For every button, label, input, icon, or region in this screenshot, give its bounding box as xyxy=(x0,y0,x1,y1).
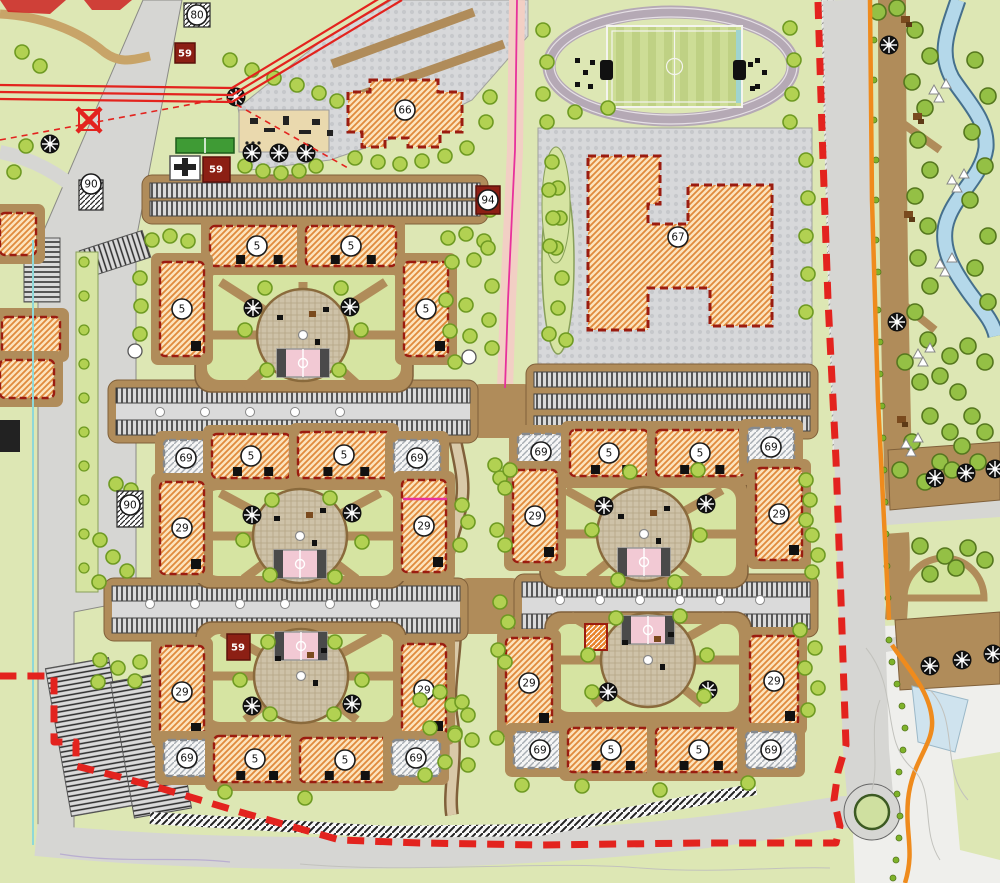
exercise-equipment xyxy=(583,70,588,75)
park-tree xyxy=(922,278,938,294)
tree xyxy=(668,575,682,589)
park-tree xyxy=(977,552,993,568)
carousel-hub xyxy=(991,652,996,657)
edge-structure xyxy=(0,420,20,452)
carousel-hub xyxy=(928,664,933,669)
carousel-hub xyxy=(350,702,355,707)
tree xyxy=(238,323,252,337)
bench-icon xyxy=(321,648,327,653)
play-equipment-icon xyxy=(312,119,320,125)
tree xyxy=(79,257,89,267)
tree xyxy=(811,681,825,695)
park-tree xyxy=(967,52,983,68)
tree xyxy=(455,498,469,512)
tree xyxy=(542,183,556,197)
play-equipment-icon xyxy=(299,130,311,134)
park-tree xyxy=(922,48,938,64)
tree xyxy=(803,493,817,507)
bench-icon xyxy=(622,640,628,645)
carousel-hub xyxy=(964,471,969,476)
tree xyxy=(546,211,560,225)
tree xyxy=(413,693,427,707)
tree xyxy=(467,253,481,267)
bush xyxy=(890,875,896,881)
park-tree xyxy=(922,408,938,424)
tree xyxy=(490,523,504,537)
tree xyxy=(601,101,615,115)
entrance xyxy=(264,467,273,476)
lane-island-dot xyxy=(146,600,155,609)
tree xyxy=(323,491,337,505)
play-item-icon xyxy=(306,512,313,518)
courtyard-block-1 xyxy=(195,262,413,392)
plaza-dot xyxy=(128,344,142,358)
entrance xyxy=(435,341,445,351)
courtyard-block-2 xyxy=(194,478,406,588)
tree xyxy=(163,229,177,243)
tree xyxy=(328,635,342,649)
tree xyxy=(485,341,499,355)
tree xyxy=(312,86,326,100)
entrance xyxy=(680,465,689,474)
marker-59: 59 xyxy=(227,634,250,660)
tree xyxy=(488,458,502,472)
right-road xyxy=(846,0,870,795)
park-tree xyxy=(907,304,923,320)
lane-island-dot xyxy=(281,600,290,609)
park-tree xyxy=(910,132,926,148)
park-tree xyxy=(889,0,905,16)
building-29: 29 xyxy=(151,473,213,583)
tree xyxy=(798,661,812,675)
building-5: 5 xyxy=(201,217,313,275)
promenade-south xyxy=(896,533,899,620)
building-footprint xyxy=(0,360,54,398)
roundabout-island xyxy=(855,795,889,829)
exercise-equipment xyxy=(575,82,580,87)
tree xyxy=(811,548,825,562)
building-number-5: 5 xyxy=(608,745,615,757)
tree xyxy=(354,323,368,337)
court-key xyxy=(275,632,284,660)
tree xyxy=(233,673,247,687)
tree xyxy=(93,653,107,667)
tree xyxy=(501,615,515,629)
entrance xyxy=(323,467,332,476)
tree xyxy=(332,363,346,377)
tree xyxy=(783,21,797,35)
building-number-29: 29 xyxy=(417,521,430,533)
tree xyxy=(265,493,279,507)
tree xyxy=(483,90,497,104)
fitness-icon xyxy=(182,158,188,176)
carousel-hub xyxy=(606,690,611,695)
tree xyxy=(540,115,554,129)
building-5: 5 xyxy=(297,217,405,275)
tree xyxy=(801,703,815,717)
tree xyxy=(111,661,125,675)
exercise-equipment xyxy=(588,84,593,89)
utility-shed xyxy=(585,624,607,650)
tree xyxy=(585,685,599,699)
tree xyxy=(79,359,89,369)
tree xyxy=(292,164,306,178)
park-tree xyxy=(942,348,958,364)
tree xyxy=(805,565,819,579)
tree xyxy=(515,778,529,792)
picnic-table-icon xyxy=(913,113,922,120)
carousel-hub xyxy=(251,306,256,311)
tree xyxy=(623,465,637,479)
lane-island-dot xyxy=(371,600,380,609)
tree xyxy=(793,623,807,637)
bush xyxy=(896,769,902,775)
tree xyxy=(348,151,362,165)
marker-number-59: 59 xyxy=(231,643,245,654)
tree xyxy=(799,473,813,487)
tree xyxy=(91,675,105,689)
tree xyxy=(455,695,469,709)
tree xyxy=(330,94,344,108)
tree xyxy=(263,568,277,582)
tree xyxy=(263,707,277,721)
bush xyxy=(896,835,902,841)
tree xyxy=(611,573,625,587)
lane-island-dot xyxy=(291,408,300,417)
tree xyxy=(481,241,495,255)
tree xyxy=(438,149,452,163)
marker-number-90: 90 xyxy=(84,179,97,191)
bench-icon xyxy=(664,506,670,511)
bench-icon xyxy=(315,339,320,345)
tree xyxy=(415,154,429,168)
park-tree xyxy=(912,538,928,554)
building-number-66: 66 xyxy=(398,105,412,117)
entrance xyxy=(233,467,242,476)
tree xyxy=(808,641,822,655)
tree xyxy=(498,655,512,669)
tree xyxy=(260,363,274,377)
tree xyxy=(15,45,29,59)
tree xyxy=(19,139,33,153)
marker-59: 59 xyxy=(175,43,195,63)
court-key xyxy=(665,616,674,644)
park-tree xyxy=(980,88,996,104)
bench-icon xyxy=(668,632,674,637)
tree xyxy=(536,87,550,101)
tree xyxy=(479,115,493,129)
exercise-equipment xyxy=(750,86,755,91)
play-dot xyxy=(245,141,248,144)
tree xyxy=(799,153,813,167)
tree xyxy=(261,635,275,649)
picnic-table-icon xyxy=(901,16,910,23)
bench-icon xyxy=(656,538,661,544)
building-number-69: 69 xyxy=(179,453,192,465)
tree xyxy=(7,165,21,179)
plaza-dot xyxy=(462,350,476,364)
tree xyxy=(355,535,369,549)
promenade xyxy=(892,0,900,505)
park-tree xyxy=(912,374,928,390)
tree xyxy=(673,609,687,623)
tree xyxy=(393,157,407,171)
entrance xyxy=(274,255,283,264)
building-69: 69 xyxy=(737,723,805,777)
tree xyxy=(783,115,797,129)
carousel-hub xyxy=(704,502,709,507)
bench-icon xyxy=(323,307,329,312)
tree xyxy=(482,313,496,327)
parking-apron xyxy=(142,175,488,224)
building-5: 5 xyxy=(151,253,213,365)
tree xyxy=(568,105,582,119)
exercise-equipment xyxy=(755,58,760,63)
building-number-5: 5 xyxy=(342,755,349,767)
bench-icon xyxy=(312,540,317,546)
tree xyxy=(79,325,89,335)
tree xyxy=(465,733,479,747)
picnic-table-icon xyxy=(906,22,912,27)
tree xyxy=(801,267,815,281)
tree xyxy=(585,523,599,537)
entrance xyxy=(680,761,689,770)
entrance xyxy=(592,761,601,770)
building-5: 5 xyxy=(203,425,299,487)
park-tree xyxy=(977,158,993,174)
courtyard-block-3 xyxy=(540,476,748,588)
tree xyxy=(493,595,507,609)
building-number-69: 69 xyxy=(533,745,546,757)
building-29: 29 xyxy=(504,461,566,571)
tree xyxy=(334,281,348,295)
play-item-icon xyxy=(307,652,314,658)
marker-number-90: 90 xyxy=(123,500,136,512)
fountain-dot xyxy=(299,331,308,340)
building-number-5: 5 xyxy=(423,304,430,316)
tree xyxy=(79,529,89,539)
bush xyxy=(902,725,908,731)
tree xyxy=(128,674,142,688)
tree xyxy=(448,355,462,369)
exercise-equipment xyxy=(575,58,580,63)
play-equipment-icon xyxy=(283,116,289,125)
carousel-hub xyxy=(304,151,309,156)
bush xyxy=(873,157,879,163)
park-tree xyxy=(910,250,926,266)
entrance xyxy=(544,547,554,557)
building-partial xyxy=(0,351,63,407)
tree xyxy=(543,239,557,253)
tree xyxy=(805,528,819,542)
tree xyxy=(799,513,813,527)
tree xyxy=(433,685,447,699)
carousel-hub xyxy=(348,305,353,310)
building-5: 5 xyxy=(291,729,399,791)
park-tree xyxy=(932,368,948,384)
marker-number-80: 80 xyxy=(190,10,203,22)
tree xyxy=(453,538,467,552)
bench-icon xyxy=(660,664,665,670)
bush xyxy=(889,659,895,665)
entrance xyxy=(191,559,201,569)
tree xyxy=(258,281,272,295)
park-tree xyxy=(964,408,980,424)
marker-number-59: 59 xyxy=(178,49,192,60)
park-tree xyxy=(964,124,980,140)
tree xyxy=(133,271,147,285)
bush xyxy=(900,747,906,753)
picnic-table-icon xyxy=(897,416,906,423)
tree xyxy=(551,301,565,315)
park-tree xyxy=(977,354,993,370)
building-number-69: 69 xyxy=(410,453,423,465)
play-item-icon xyxy=(650,510,657,516)
building-footprint xyxy=(0,213,36,255)
building-number-29: 29 xyxy=(772,509,785,521)
lane-island-dot xyxy=(676,596,685,605)
tree xyxy=(697,689,711,703)
tree xyxy=(741,776,755,790)
tree xyxy=(460,141,474,155)
carousel-hub xyxy=(250,513,255,518)
tree xyxy=(555,271,569,285)
exercise-equipment xyxy=(762,70,767,75)
building-number-29: 29 xyxy=(175,687,188,699)
tree xyxy=(218,785,232,799)
carousel-hub xyxy=(933,476,938,481)
park-tree xyxy=(892,462,908,478)
building-number-69: 69 xyxy=(764,442,777,454)
fountain-dot xyxy=(297,672,306,681)
marker-80: 80 xyxy=(184,3,210,27)
entrance xyxy=(331,255,340,264)
tree xyxy=(461,708,475,722)
marker-59: 59 xyxy=(203,157,230,182)
play-dot xyxy=(257,141,260,144)
entrance xyxy=(433,557,443,567)
tree xyxy=(274,166,288,180)
tree xyxy=(801,191,815,205)
park-tree xyxy=(967,260,983,276)
site-plan-screenshot: 5555695569292969556929292929695569292969… xyxy=(0,0,1000,883)
building-number-29: 29 xyxy=(528,511,541,523)
carousel-hub xyxy=(887,43,892,48)
park-tree xyxy=(962,192,978,208)
entrance xyxy=(785,711,795,721)
entrance xyxy=(539,713,549,723)
building-29: 29 xyxy=(393,471,455,581)
tree xyxy=(133,327,147,341)
building-number-5: 5 xyxy=(348,241,355,253)
court-key xyxy=(618,548,627,576)
tree xyxy=(542,327,556,341)
lane-island-dot xyxy=(156,408,165,417)
marker-number-59: 59 xyxy=(209,165,223,176)
entrance xyxy=(591,465,600,474)
tree xyxy=(609,611,623,625)
marker-90: 90 xyxy=(117,491,143,527)
court-key xyxy=(277,349,286,377)
tree xyxy=(575,779,589,793)
building-29: 29 xyxy=(151,637,213,747)
tree xyxy=(439,293,453,307)
tree xyxy=(298,791,312,805)
court-key xyxy=(661,548,670,576)
park-tree xyxy=(960,540,976,556)
picnic-table-icon xyxy=(909,217,915,222)
park-tree xyxy=(954,438,970,454)
parking-row xyxy=(534,394,810,409)
bench-icon xyxy=(275,656,281,661)
park-tree xyxy=(922,566,938,582)
lane-island-dot xyxy=(246,408,255,417)
tree xyxy=(328,570,342,584)
bench-icon xyxy=(274,516,280,521)
bush xyxy=(894,681,900,687)
tree xyxy=(799,305,813,319)
park-tree xyxy=(948,560,964,576)
tree xyxy=(503,463,517,477)
building-number-5: 5 xyxy=(341,450,348,462)
tree xyxy=(459,227,473,241)
building-partial xyxy=(0,204,45,264)
tree xyxy=(545,155,559,169)
bench-icon xyxy=(320,508,326,513)
building-number-5: 5 xyxy=(606,448,613,460)
tree xyxy=(106,550,120,564)
park-tree xyxy=(920,218,936,234)
tree xyxy=(79,563,89,573)
tree xyxy=(418,768,432,782)
carousel-hub xyxy=(48,142,53,147)
building-footprint xyxy=(2,317,60,353)
tree xyxy=(443,324,457,338)
lane-island-dot xyxy=(636,596,645,605)
carousel-hub xyxy=(960,658,965,663)
tree xyxy=(441,231,455,245)
entrance xyxy=(714,761,723,770)
entrance xyxy=(269,771,278,780)
marker-94: 94 xyxy=(476,186,500,214)
tree xyxy=(490,731,504,745)
picnic-table-icon xyxy=(918,119,924,124)
lane-island-dot xyxy=(326,600,335,609)
lane-island-dot xyxy=(336,408,345,417)
park-tree xyxy=(960,338,976,354)
building-number-5: 5 xyxy=(697,448,704,460)
carousel-hub xyxy=(895,320,900,325)
carousel-hub xyxy=(602,504,607,509)
tree xyxy=(785,87,799,101)
tree xyxy=(79,427,89,437)
tree xyxy=(371,155,385,169)
building-number-29: 29 xyxy=(522,678,535,690)
building-number-29: 29 xyxy=(767,676,780,688)
bench-icon xyxy=(618,514,624,519)
tree xyxy=(355,673,369,687)
carousel-hub xyxy=(350,511,355,516)
parking-row xyxy=(150,201,480,216)
tree xyxy=(787,53,801,67)
tree xyxy=(485,279,499,293)
park-tree xyxy=(904,74,920,90)
building-number-67: 67 xyxy=(671,232,684,244)
entrance xyxy=(715,465,724,474)
park-tree xyxy=(977,424,993,440)
tree xyxy=(559,333,573,347)
building-number-69: 69 xyxy=(180,753,193,765)
